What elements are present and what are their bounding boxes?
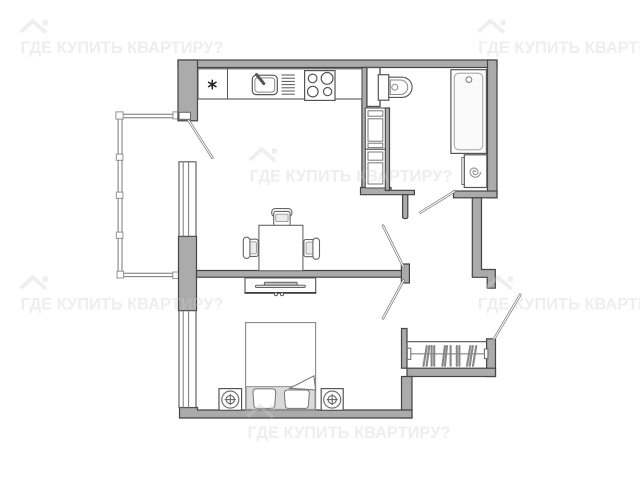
svg-text:ГДЕ КУПИТЬ КВАРТИРУ?: ГДЕ КУПИТЬ КВАРТИРУ? — [21, 295, 224, 313]
svg-text:ГДЕ КУПИТЬ КВАРТИРУ?: ГДЕ КУПИТЬ КВАРТИРУ? — [478, 39, 640, 57]
svg-text:ГДЕ КУПИТЬ КВАРТИРУ?: ГДЕ КУПИТЬ КВАРТИРУ? — [250, 167, 453, 185]
svg-text:ГДЕ КУПИТЬ КВАРТИРУ?: ГДЕ КУПИТЬ КВАРТИРУ? — [248, 424, 451, 442]
svg-text:ГДЕ КУПИТЬ КВАРТИРУ?: ГДЕ КУПИТЬ КВАРТИРУ? — [478, 295, 640, 313]
svg-text:ГДЕ КУПИТЬ КВАРТИРУ?: ГДЕ КУПИТЬ КВАРТИРУ? — [21, 39, 224, 57]
